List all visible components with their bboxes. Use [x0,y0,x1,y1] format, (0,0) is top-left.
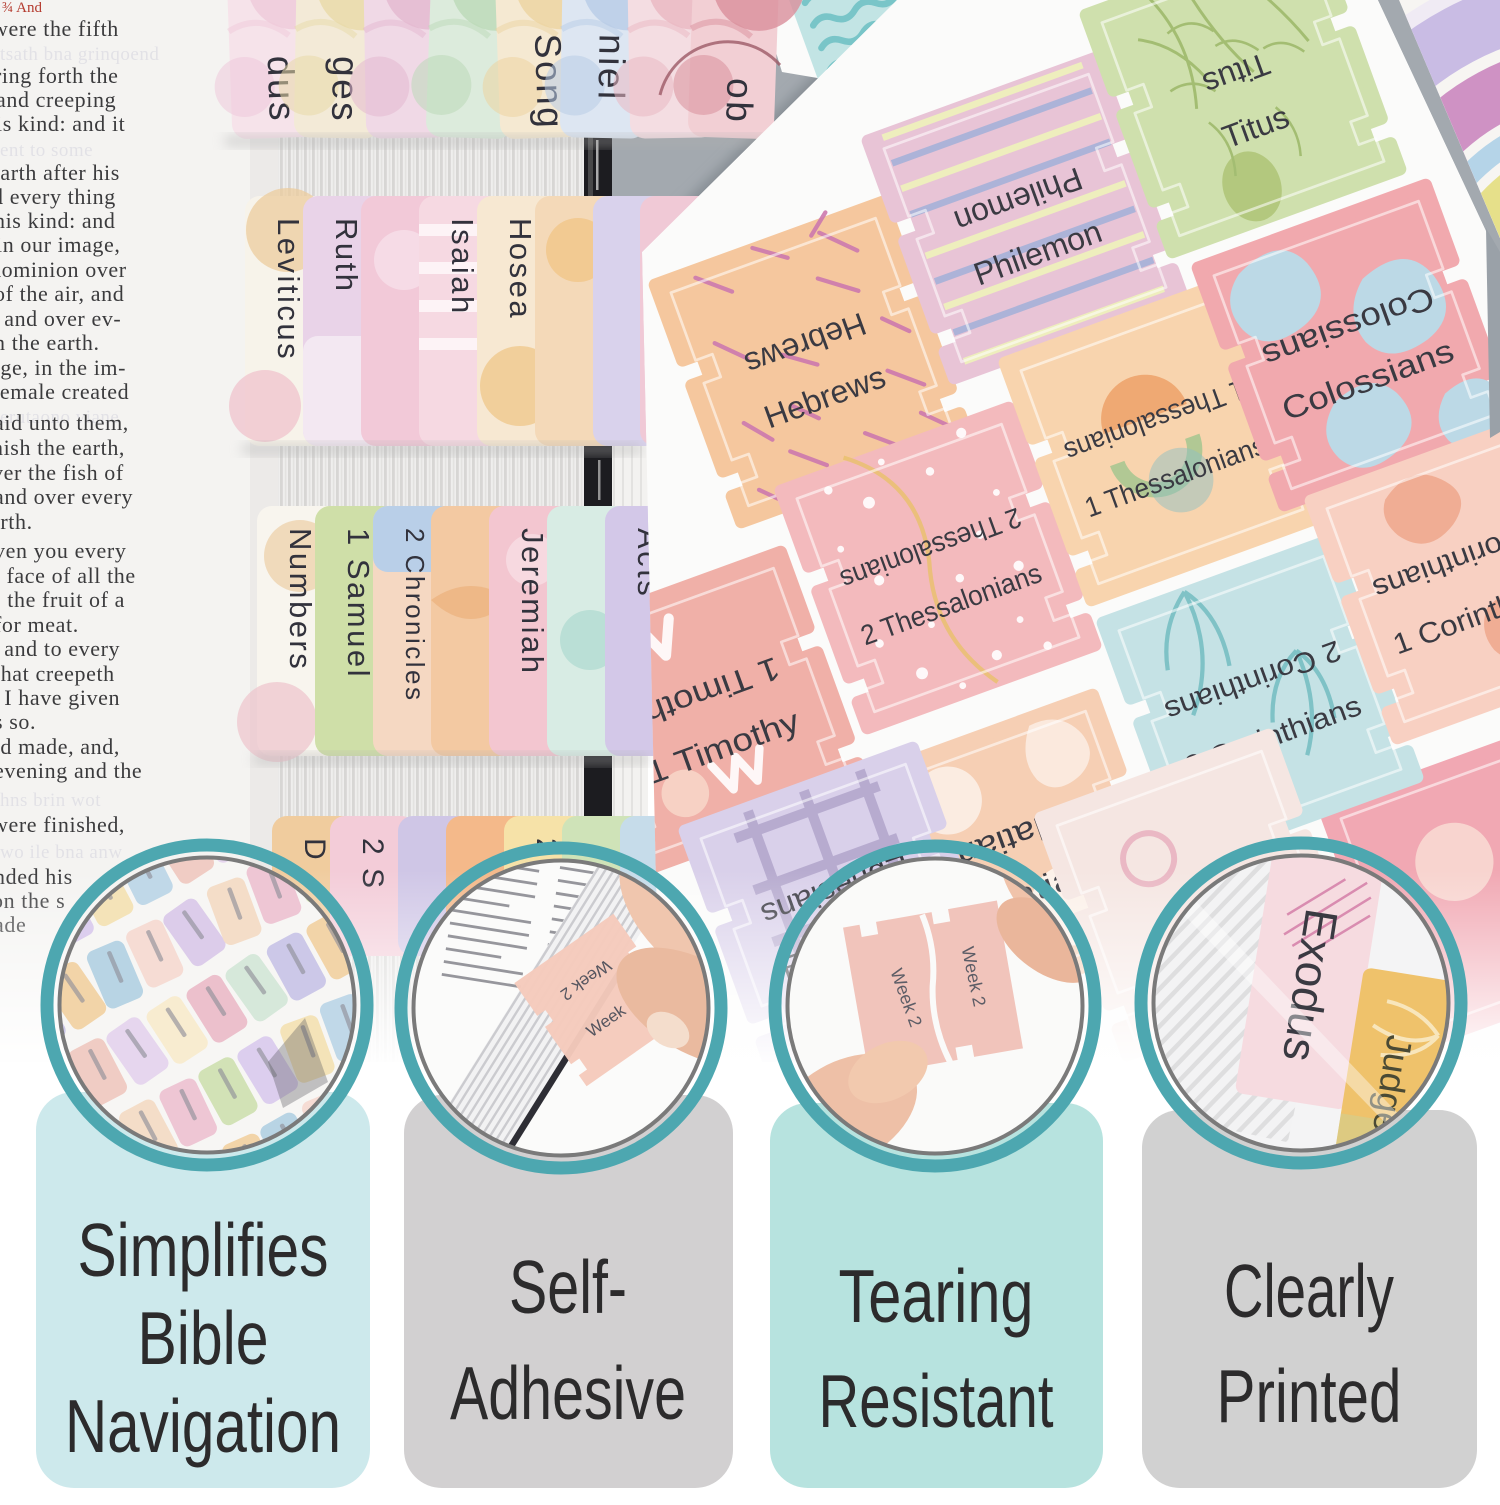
svg-text:Resistant: Resistant [819,1359,1054,1443]
svg-text:e face of all the: e face of all the [0,563,136,588]
svg-text:Simplifies: Simplifies [78,1208,329,1292]
svg-text:ver the fish of: ver the fish of [0,460,124,485]
svg-text:is kind: and it: is kind: and it [0,111,125,136]
svg-text:2 Chronicles: 2 Chronicles [400,528,430,703]
svg-text:his kind: and: his kind: and [0,208,115,233]
svg-text:d every thing: d every thing [0,184,116,209]
svg-text:were the fifth: were the fifth [0,16,119,41]
svg-text:in our image,: in our image, [0,232,121,257]
svg-text:Navigation: Navigation [65,1384,341,1468]
svg-text:Ruth: Ruth [329,218,364,293]
svg-text:tsath bna grinqoend: tsath bna grinqoend [0,44,159,65]
svg-text:, and over ev-: , and over ev- [0,306,121,331]
svg-text:n the earth.: n the earth. [0,330,100,355]
svg-text:D: D [298,838,331,862]
svg-text:Clearly: Clearly [1224,1249,1394,1333]
svg-text:¾ And: ¾ And [2,0,43,16]
svg-text:Hosea: Hosea [503,218,538,320]
svg-text:dominion over: dominion over [0,257,127,282]
svg-text:Isaiah: Isaiah [445,218,480,316]
svg-text:of the air, and: of the air, and [0,281,124,306]
svg-text:nish the earth,: nish the earth, [0,435,125,460]
svg-text:ob: ob [718,78,761,126]
svg-text:were finished,: were finished, [0,812,125,837]
svg-text:evening and the: evening and the [0,758,142,783]
svg-text:female created: female created [0,379,129,404]
svg-text:Adhesive: Adhesive [450,1351,686,1435]
svg-text:ad made, and,: ad made, and, [0,734,120,759]
svg-text:, and to every: , and to every [0,636,120,661]
svg-text:1 Samuel: 1 Samuel [341,528,376,679]
svg-text:hns brin wot: hns brin wot [0,790,101,811]
svg-text:Jeremiah: Jeremiah [515,528,550,676]
svg-text:for meat.: for meat. [0,612,79,637]
svg-text:Numbers: Numbers [283,528,318,671]
svg-text:ring forth the: ring forth the [0,63,118,88]
svg-text:s so.: s so. [0,709,36,734]
svg-text:Self-: Self- [509,1245,627,1329]
svg-text:and over every: and over every [0,484,133,509]
svg-text:Tearing: Tearing [839,1254,1034,1338]
svg-text:Printed: Printed [1217,1354,1402,1438]
svg-text:, I have given: , I have given [0,685,120,710]
svg-text:arth.: arth. [0,509,33,534]
svg-text:aid unto them,: aid unto them, [0,410,129,435]
svg-text:s the fruit of a: s the fruit of a [0,587,125,612]
svg-text:ent to some: ent to some [0,140,93,161]
svg-text:and creeping: and creeping [0,87,116,112]
svg-text:earth after his: earth after his [0,160,120,185]
svg-text:Bible: Bible [138,1296,269,1380]
svg-text:ven you every: ven you every [0,538,126,563]
svg-text:wo ile bna anw: wo ile bna anw [0,842,123,863]
svg-text:Leviticus: Leviticus [271,218,306,361]
svg-text:that creepeth: that creepeth [0,661,115,686]
svg-text:age, in the im-: age, in the im- [0,355,126,380]
